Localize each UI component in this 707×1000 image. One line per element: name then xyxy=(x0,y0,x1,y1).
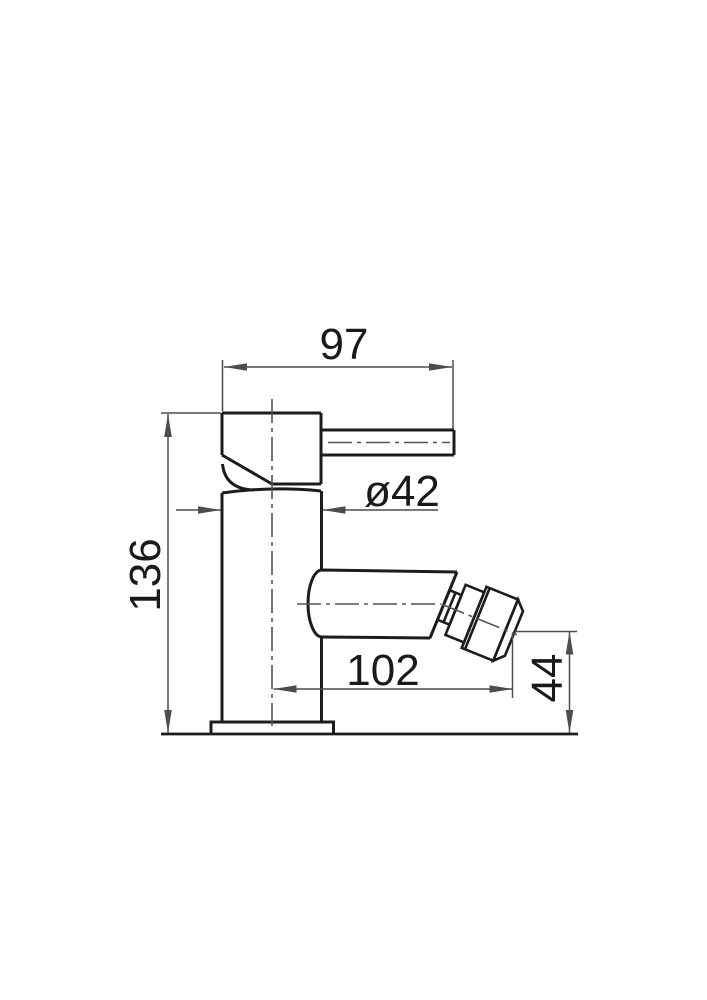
arrowhead-left-icon xyxy=(274,685,297,693)
dimension-136: 136 xyxy=(121,413,221,733)
shoulder-arc xyxy=(223,464,255,490)
arrowhead-right-icon xyxy=(429,363,452,371)
technical-drawing-page: 97 ø42 136 102 44 xyxy=(0,0,707,1000)
technical-drawing-canvas: 97 ø42 136 102 44 xyxy=(0,0,707,1000)
dimension-label-44: 44 xyxy=(523,654,572,703)
arrowhead-right-icon xyxy=(490,685,513,693)
dimension-label-136: 136 xyxy=(121,538,170,611)
dimension-label-102: 102 xyxy=(346,646,419,695)
dimension-label-diameter: ø42 xyxy=(364,467,440,516)
dimension-diameter-42: ø42 xyxy=(176,467,440,516)
dimension-label-97: 97 xyxy=(320,320,369,369)
arrowhead-right-icon xyxy=(323,506,346,514)
arrowhead-left-icon xyxy=(224,363,247,371)
arrowhead-down-icon xyxy=(164,710,172,733)
arrowhead-up-icon xyxy=(566,632,574,655)
arrowhead-left-icon xyxy=(198,506,221,514)
arrowhead-down-icon xyxy=(566,710,574,733)
dimension-44: 44 xyxy=(515,632,577,734)
arrowhead-up-icon xyxy=(164,414,172,437)
dimension-102: 102 xyxy=(274,633,513,698)
aerator-nozzle xyxy=(429,574,529,666)
